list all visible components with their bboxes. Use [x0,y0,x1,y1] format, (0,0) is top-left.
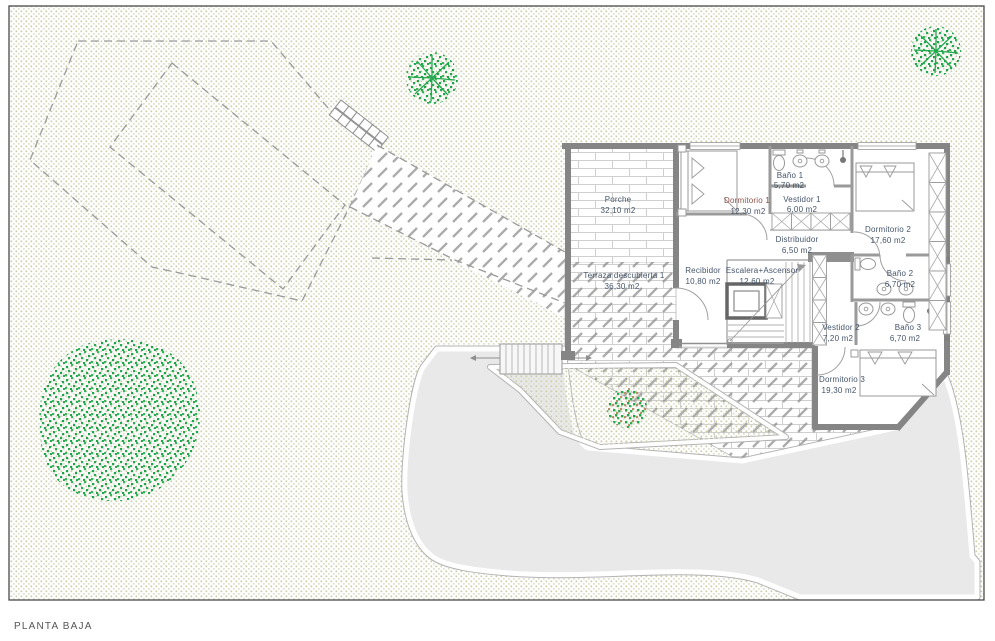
toilet-icon [773,150,785,171]
svg-text:10,80 m2: 10,80 m2 [686,277,721,286]
svg-text:Baño 1: Baño 1 [777,171,804,180]
svg-text:12,30 m2: 12,30 m2 [731,207,766,216]
elevator-icon [727,284,766,318]
svg-text:Escalera+Ascensor: Escalera+Ascensor [726,266,799,275]
svg-text:17,60 m2: 17,60 m2 [871,236,906,245]
svg-text:Terraza descubierta 1: Terraza descubierta 1 [583,271,664,280]
bed-icon [851,350,936,396]
wardrobe-icon [772,213,850,230]
svg-text:Baño 2: Baño 2 [887,269,914,278]
wardrobe-icon [929,153,946,330]
floor-plan-svg: Porche 32,10 m2 Terraza descubierta 1 36… [0,0,995,641]
toilet-icon [855,258,876,270]
plan-title: PLANTA BAJA [14,621,93,632]
svg-text:6,70 m2: 6,70 m2 [890,334,921,343]
svg-text:Vestidor 2: Vestidor 2 [822,323,860,332]
svg-text:6,70 m2: 6,70 m2 [885,280,916,289]
svg-text:Porche: Porche [605,195,632,204]
svg-text:32,10 m2: 32,10 m2 [601,206,636,215]
bed-icon [856,163,914,211]
bush-icon [607,388,647,428]
tree-icon [911,26,961,76]
bed-icon [678,145,737,216]
room-label-vestidor-1: Vestidor 1 6,00 m2 [783,195,821,214]
svg-text:6,50 m2: 6,50 m2 [782,246,813,255]
floor-plan-page: Porche 32,10 m2 Terraza descubierta 1 36… [0,0,995,641]
svg-text:6,00 m2: 6,00 m2 [787,205,818,214]
svg-text:7,20 m2: 7,20 m2 [823,334,854,343]
tree-icon [406,52,458,104]
svg-text:19,30 m2: 19,30 m2 [822,386,857,395]
toilet-icon [903,302,915,323]
svg-text:Vestidor 1: Vestidor 1 [783,195,821,204]
svg-text:Dormitorio 1: Dormitorio 1 [724,196,770,205]
svg-text:5,70 m2: 5,70 m2 [774,181,805,190]
svg-text:Distribuidor: Distribuidor [776,235,819,244]
svg-text:Recibidor: Recibidor [685,266,721,275]
svg-text:36,30 m2: 36,30 m2 [605,282,640,291]
porch-paving [568,146,676,262]
svg-text:Dormitorio 3: Dormitorio 3 [819,375,865,384]
svg-text:Baño 3: Baño 3 [895,323,922,332]
room-label-bano-1: Baño 1 5,70 m2 [774,171,805,190]
svg-text:12,60 m2: 12,60 m2 [740,277,775,286]
svg-text:Dormitorio 2: Dormitorio 2 [865,225,911,234]
